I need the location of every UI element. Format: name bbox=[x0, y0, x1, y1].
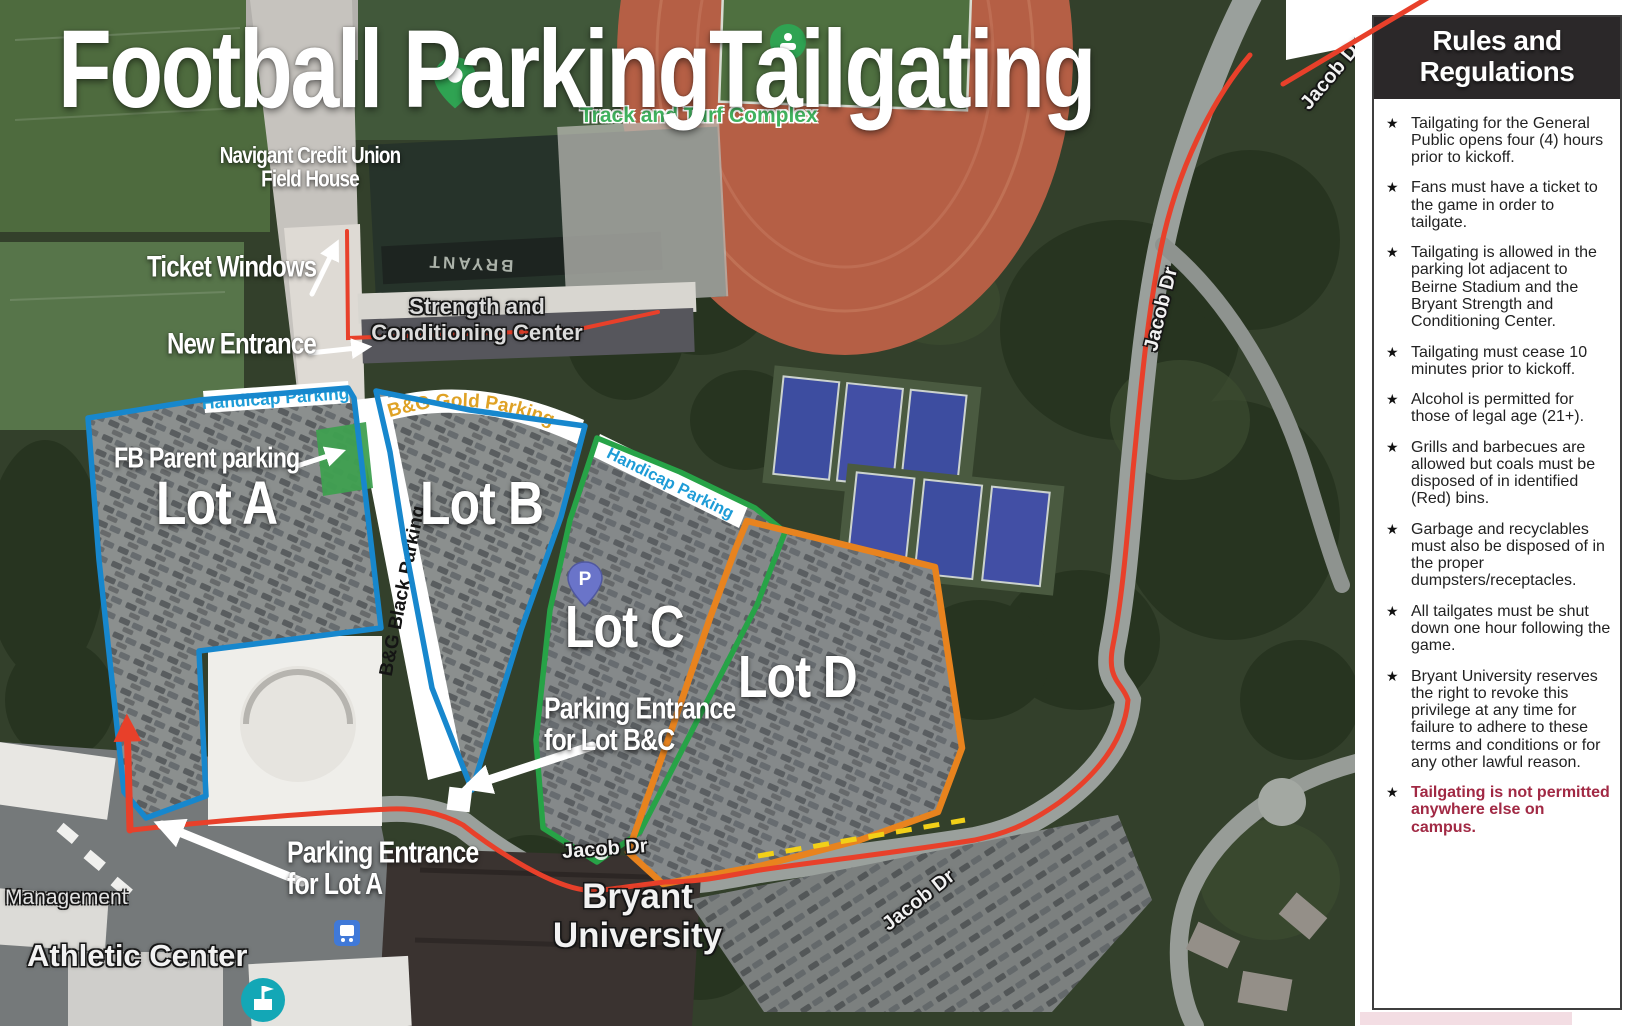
star-bullet-icon: ★ bbox=[1386, 244, 1400, 330]
title-parking: Football Parking bbox=[58, 8, 709, 131]
rule-item: ★Tailgating for the General Public opens… bbox=[1386, 115, 1612, 167]
rule-text: Bryant University reserves the right to … bbox=[1411, 668, 1612, 772]
rule-item: ★Alcohol is permitted for those of legal… bbox=[1386, 391, 1612, 426]
rule-item: ★Tailgating is allowed in the parking lo… bbox=[1386, 244, 1612, 330]
rule-item: ★Tailgating is not permitted anywhere el… bbox=[1386, 784, 1612, 836]
rule-item: ★Tailgating must cease 10 minutes prior … bbox=[1386, 344, 1612, 379]
route-arrow-lot-a bbox=[127, 722, 130, 830]
rules-panel-title: Rules and Regulations bbox=[1374, 17, 1620, 99]
svg-text:P: P bbox=[579, 569, 592, 590]
entrance-square-marker bbox=[447, 787, 473, 813]
star-bullet-icon: ★ bbox=[1386, 439, 1400, 508]
rule-item: ★All tailgates must be shut down one hou… bbox=[1386, 603, 1612, 655]
rules-panel: Rules and Regulations ★Tailgating for th… bbox=[1372, 15, 1622, 1010]
star-bullet-icon: ★ bbox=[1386, 344, 1400, 379]
rule-text: Tailgating is not permitted anywhere els… bbox=[1411, 784, 1612, 836]
rotunda-building bbox=[208, 636, 382, 826]
rule-text: Alcohol is permitted for those of legal … bbox=[1411, 391, 1612, 426]
title-tailgating: Tailgating bbox=[709, 8, 1094, 131]
star-bullet-icon: ★ bbox=[1386, 115, 1400, 167]
pink-strip-decoration bbox=[1360, 1012, 1572, 1025]
star-bullet-icon: ★ bbox=[1386, 784, 1400, 836]
rule-text: Fans must have a ticket to the game in o… bbox=[1411, 179, 1612, 231]
rules-list: ★Tailgating for the General Public opens… bbox=[1374, 115, 1620, 836]
page-title: Football ParkingTailgating bbox=[58, 18, 1094, 123]
rule-item: ★Bryant University reserves the right to… bbox=[1386, 668, 1612, 772]
star-bullet-icon: ★ bbox=[1386, 179, 1400, 231]
star-bullet-icon: ★ bbox=[1386, 391, 1400, 426]
star-bullet-icon: ★ bbox=[1386, 603, 1400, 655]
rule-item: ★Grills and barbecues are allowed but co… bbox=[1386, 439, 1612, 508]
athletic-center-icon bbox=[241, 978, 285, 1022]
rule-text: Tailgating for the General Public opens … bbox=[1411, 115, 1612, 167]
rule-item: ★Fans must have a ticket to the game in … bbox=[1386, 179, 1612, 231]
satellite-terrain: Handicap Parking B&G Gold Parking B&G Bl… bbox=[0, 0, 1355, 1026]
campus-map: Handicap Parking B&G Gold Parking B&G Bl… bbox=[0, 0, 1355, 1026]
rule-text: Grills and barbecues are allowed but coa… bbox=[1411, 439, 1612, 508]
rule-text: Tailgating is allowed in the parking lot… bbox=[1411, 244, 1612, 330]
transit-icon bbox=[334, 920, 360, 946]
star-bullet-icon: ★ bbox=[1386, 668, 1400, 772]
star-bullet-icon: ★ bbox=[1386, 521, 1400, 590]
rule-text: All tailgates must be shut down one hour… bbox=[1411, 603, 1612, 655]
rule-text: Tailgating must cease 10 minutes prior t… bbox=[1411, 344, 1612, 379]
rule-text: Garbage and recyclables must also be dis… bbox=[1411, 521, 1612, 590]
rule-item: ★Garbage and recyclables must also be di… bbox=[1386, 521, 1612, 590]
